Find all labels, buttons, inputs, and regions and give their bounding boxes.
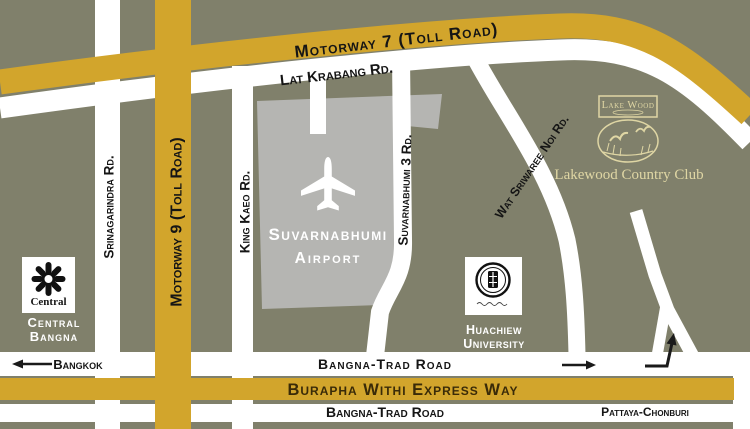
- label-huachiew-line2: University: [463, 337, 525, 351]
- label-airport-line2: Airport: [295, 250, 362, 267]
- huachiew-logo: Huachiew University: [463, 257, 525, 351]
- label-king-kaeo: King Kaeo Rd.: [238, 171, 253, 254]
- lakewood-logo-title: Lake Wood: [602, 100, 655, 111]
- label-lakewood-caption: Lakewood Country Club: [554, 167, 703, 183]
- label-airport-line1: Suvarnabhumi: [268, 225, 387, 244]
- label-huachiew-line1: Huachiew: [466, 323, 522, 337]
- flower-emblem-icon: [32, 262, 66, 296]
- label-bangna-trad-upper: Bangna-Trad Road: [318, 356, 452, 372]
- route-map: Motorway 7 (Toll Road) Lat Krabang Rd. S…: [0, 0, 750, 429]
- central-logo: Central Central Bangna: [22, 257, 80, 344]
- label-central-line1: Central: [28, 315, 81, 330]
- central-logo-wordmark: Central: [30, 296, 66, 308]
- label-pattaya-chonburi: Pattaya-Chonburi: [601, 405, 689, 419]
- label-bangna-trad-lower: Bangna-Trad Road: [326, 404, 444, 420]
- map-canvas: Motorway 7 (Toll Road) Lat Krabang Rd. S…: [0, 0, 750, 429]
- label-burapha-withi: Burapha Withi Express Way: [287, 381, 518, 399]
- label-bangkok: Bangkok: [53, 357, 103, 372]
- label-srinagarindra: Srinagarindra Rd.: [102, 155, 117, 258]
- label-central-line2: Bangna: [30, 329, 78, 344]
- label-motorway-9: Motorway 9 (Toll Road): [169, 137, 186, 306]
- road-right-edge-connector: [733, 352, 750, 429]
